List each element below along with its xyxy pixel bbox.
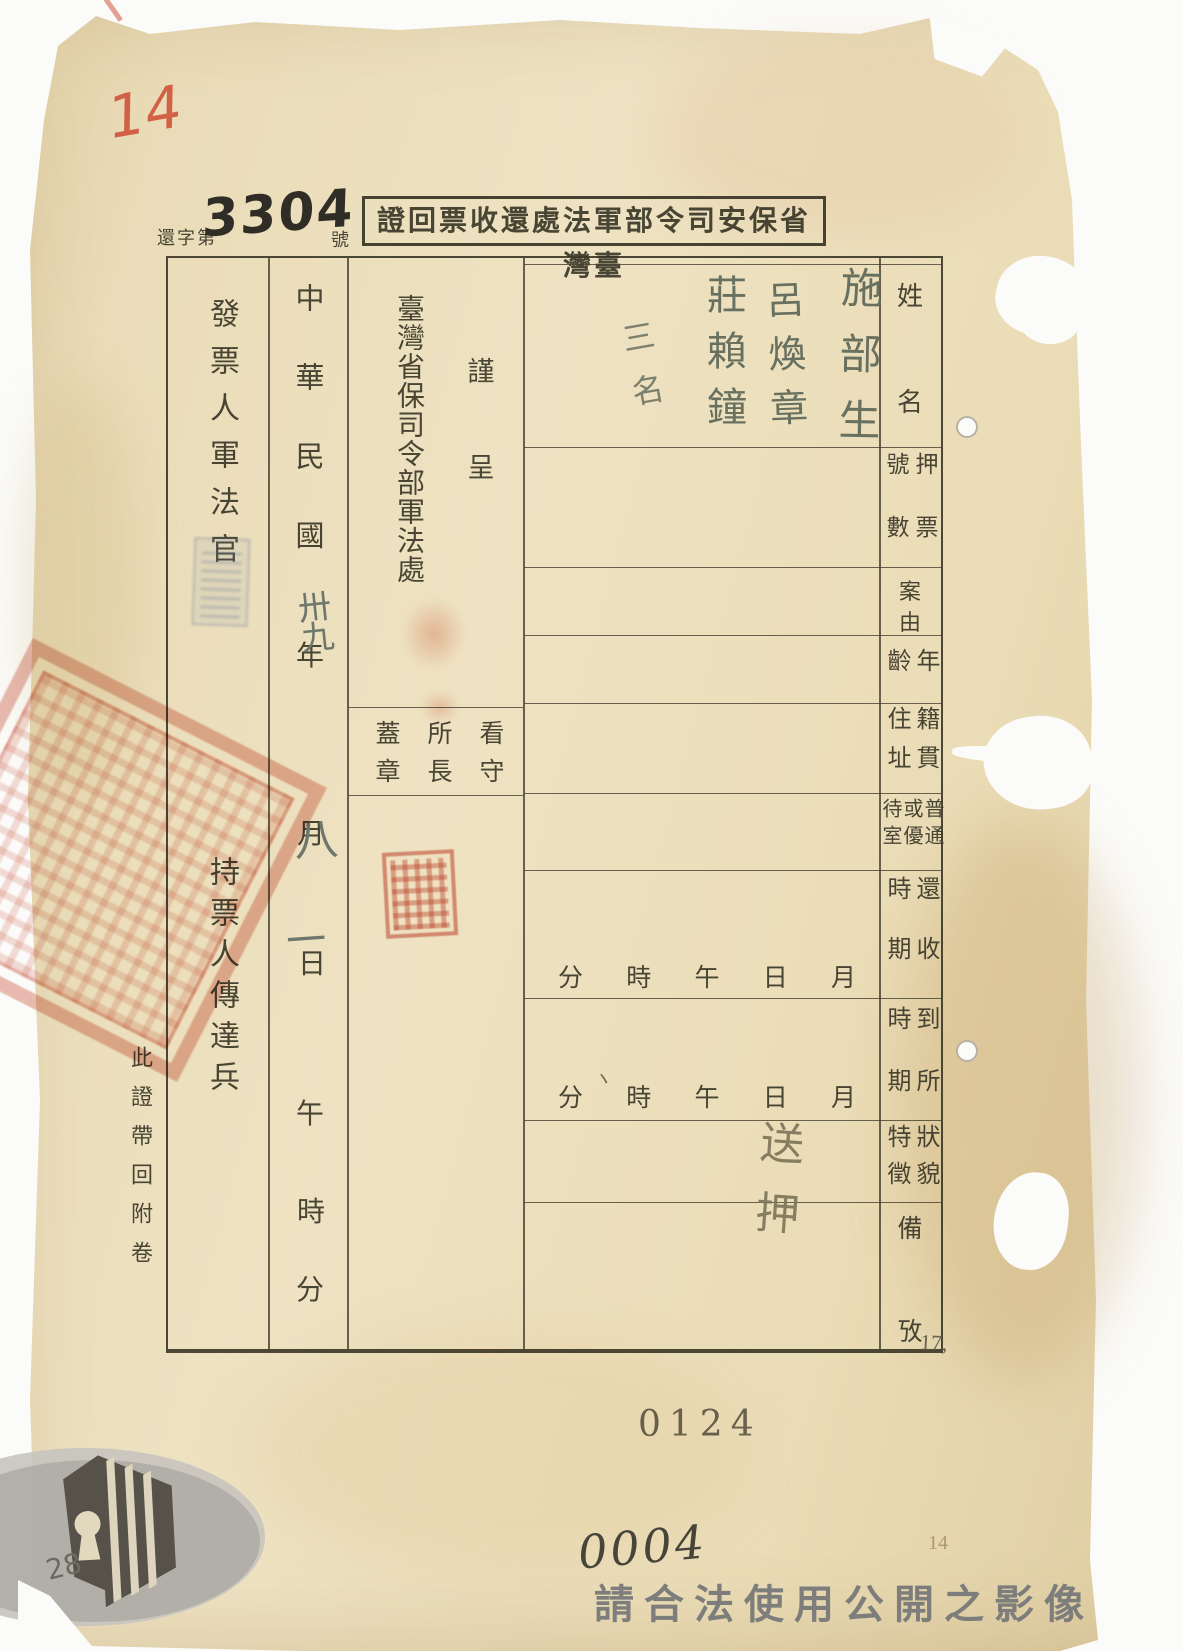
- submit-label: 謹 呈: [464, 324, 498, 516]
- time-unit: 日: [763, 958, 788, 994]
- usage-watermark: 請合法使用公開之影像: [594, 1572, 1094, 1630]
- form-title: 證回票收還處法軍部令司安保省灣臺: [362, 196, 826, 246]
- red-ink-smudge: [402, 598, 466, 670]
- warden-seal-label: 看守 所長 蓋章: [367, 720, 515, 796]
- table-rule: [524, 567, 942, 568]
- table-rule: [524, 635, 942, 636]
- time-unit: 月: [831, 958, 856, 994]
- row-label-warrant-number: 押票 號數: [883, 452, 939, 578]
- handwritten-remark: 送押: [737, 1118, 811, 1262]
- row-label-case: 案 由: [881, 576, 939, 638]
- document-scan: 還字第 3304 號 證回票收還處法軍部令司安保省灣臺 姓 名 押票 號數 案 …: [0, 0, 1183, 1651]
- time-unit: 午: [694, 958, 719, 994]
- detainee-name: 呂煥章: [753, 279, 814, 443]
- seal-script-pattern: [390, 858, 450, 931]
- red-pencil-note: 14: [103, 72, 187, 152]
- hour-label: 時: [297, 1190, 325, 1230]
- day-value-handwritten: 一: [284, 907, 328, 968]
- time-unit: 月: [831, 1078, 856, 1114]
- attach-note: 此證帶回附卷: [127, 1046, 153, 1280]
- page-stamp-number: 0124: [638, 1404, 762, 1445]
- minute-label: 分: [296, 1268, 324, 1308]
- year-value-handwritten: 卅九: [285, 588, 339, 653]
- noon-label: 午: [296, 1092, 324, 1132]
- table-rule: [524, 998, 942, 999]
- office-name: 臺灣省保司令部軍法處: [392, 294, 424, 594]
- row-label-room-class: 普通 或優 待室: [880, 798, 942, 852]
- table-rule: [524, 1202, 942, 1203]
- damage-blob: [1020, 300, 1080, 344]
- time-unit: 午: [694, 1078, 719, 1114]
- archives-book-keyhole-icon: [47, 1438, 206, 1626]
- table-rule: [524, 793, 942, 794]
- table-rule: [524, 870, 942, 871]
- table-divider: [523, 258, 525, 1351]
- time-unit: 時: [626, 958, 651, 994]
- stamp-text-illegible: [200, 545, 242, 618]
- time-unit: 分: [558, 958, 583, 994]
- punch-hole: [956, 1040, 978, 1062]
- margin-note-17: 17,: [919, 1329, 948, 1356]
- time-unit: 時: [626, 1078, 651, 1114]
- punch-hole: [956, 416, 978, 438]
- table-rule: [524, 703, 942, 704]
- table-rule: [524, 1120, 942, 1121]
- serial-number-handwritten: 3304: [201, 179, 355, 250]
- era-label: 中華民國: [292, 283, 322, 599]
- faint-blue-stamp: [191, 537, 250, 627]
- table-rule: [524, 264, 942, 265]
- row-label-origin-address: 籍貫 住址: [883, 706, 939, 784]
- row-label-return-time: 還收 時期: [883, 876, 939, 996]
- time-unit: 日: [763, 1078, 788, 1114]
- detainee-name: 施部生: [824, 265, 888, 464]
- return-time-row: 分 時 午 日 月: [558, 958, 856, 994]
- detainee-name: 莊賴鐘: [694, 274, 752, 442]
- row-label-name: 姓 名: [881, 244, 939, 456]
- margin-note-14: 14: [928, 1532, 948, 1555]
- red-ink-smudge: [420, 690, 460, 724]
- table-divider: [347, 258, 349, 1351]
- row-label-arrival-time: 到所 時期: [883, 1006, 939, 1130]
- row-label-age: 年 齡: [883, 648, 939, 672]
- handwritten-number: 0004: [576, 1514, 709, 1579]
- time-unit: 分: [558, 1078, 583, 1114]
- small-red-seal: [382, 849, 458, 939]
